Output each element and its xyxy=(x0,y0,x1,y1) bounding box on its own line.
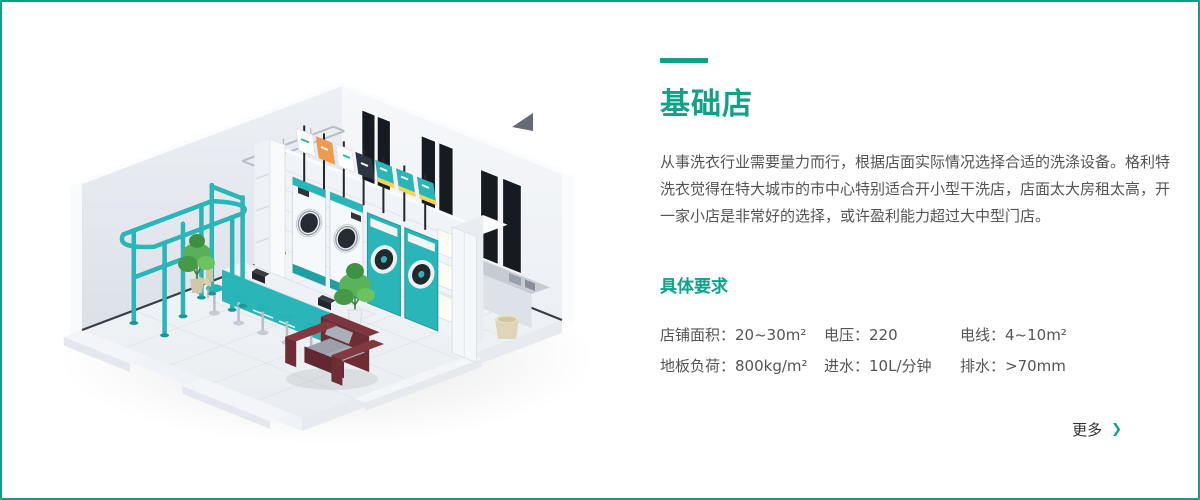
spec-item-wire: 电线：4~10m² xyxy=(960,327,1170,344)
more-link-label: 更多 xyxy=(1072,419,1102,440)
more-link[interactable]: 更多 ❯ xyxy=(1072,419,1122,440)
description-text: 从事洗衣行业需要量力而行，根据店面实际情况选择合适的洗涤设备。格利特洗衣觉得在特… xyxy=(660,149,1170,230)
spec-item-drainage: 排水：>70mm xyxy=(960,358,1170,375)
wall-decor-triangle xyxy=(512,113,533,131)
content-panel: 基础店 从事洗衣行业需要量力而行，根据店面实际情况选择合适的洗涤设备。格利特洗衣… xyxy=(660,58,1170,376)
basic-store-section: 基础店 从事洗衣行业需要量力而行，根据店面实际情况选择合适的洗涤设备。格利特洗衣… xyxy=(0,0,1200,500)
store-isometric-illustration xyxy=(57,27,622,477)
chevron-right-icon: ❯ xyxy=(1111,423,1122,436)
requirements-heading: 具体要求 xyxy=(660,272,1170,297)
spec-item-floor-load: 地板负荷：800kg/m² xyxy=(660,358,824,375)
shelf-column xyxy=(254,139,285,279)
page-title: 基础店 xyxy=(660,87,1170,123)
spec-item-water-inlet: 进水：10L/分钟 xyxy=(824,358,960,375)
spec-item-area: 店铺面积：20~30m² xyxy=(660,327,824,344)
spec-item-voltage: 电压：220 xyxy=(824,327,960,344)
requirements-grid: 店铺面积：20~30m² 电压：220 电线：4~10m² 地板负荷：800kg… xyxy=(660,327,1170,376)
laundry-basket xyxy=(495,315,519,339)
accent-bar xyxy=(660,58,708,63)
